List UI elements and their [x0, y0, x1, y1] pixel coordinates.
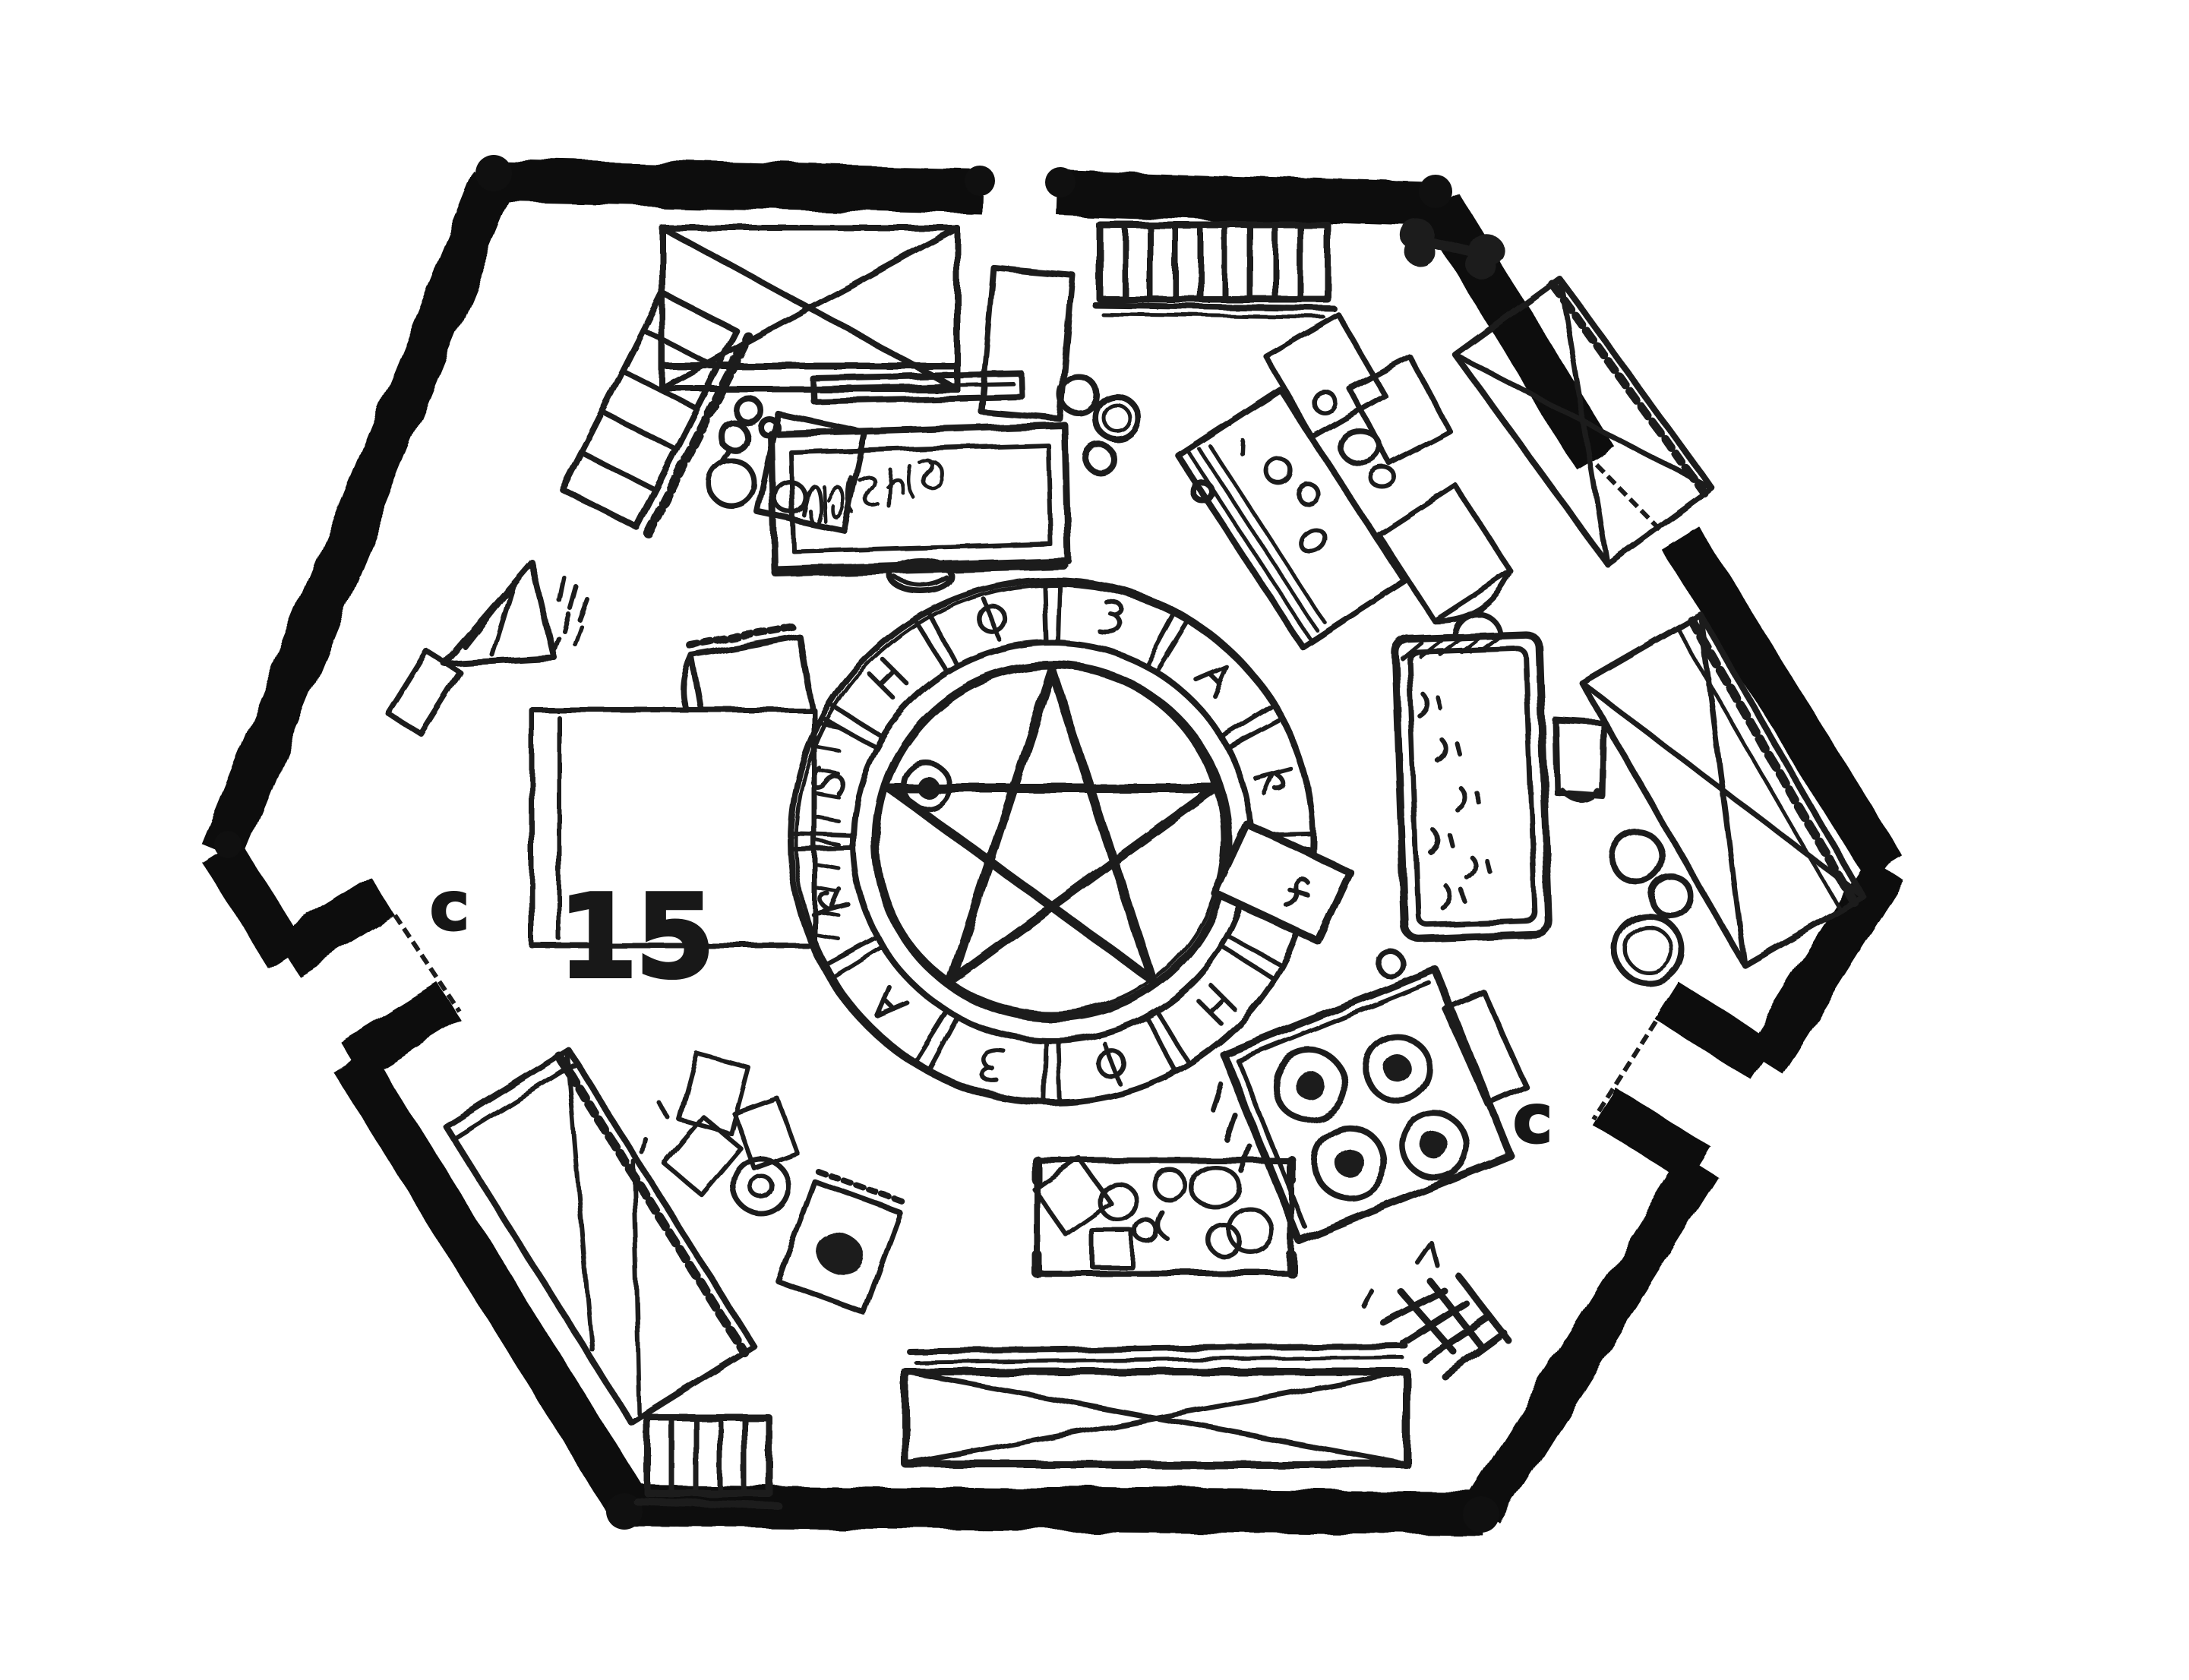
north-wall-left [495, 181, 981, 191]
pentagram-star [889, 671, 1215, 980]
knob-north-gap-left [965, 166, 995, 196]
round-side-table [709, 451, 754, 506]
southwest-door-jamb-upper [287, 897, 384, 957]
sign-with-illegible-script [772, 425, 1068, 591]
dungeon-map: 15 c c [0, 0, 2189, 1680]
southeast-wall-upper [1764, 869, 1885, 1062]
southeast-door-jamb-upper [1667, 1001, 1764, 1062]
pebbles-right-of-sign [1060, 377, 1212, 501]
work-table-south [1034, 1158, 1291, 1273]
bathing-pool [1395, 633, 1549, 939]
knob-top-left [475, 155, 512, 191]
barred-window-south [636, 1417, 778, 1505]
chair-northeast [1379, 485, 1520, 633]
door-label-southwest: c [430, 867, 469, 946]
easel-tent [444, 562, 586, 664]
falling-tick-marks [553, 577, 586, 653]
stool-right-of-pool [1556, 720, 1604, 801]
door-label-southeast: c [1513, 1080, 1553, 1158]
scattered-papers [643, 1053, 797, 1195]
bed-southwest [447, 1050, 754, 1423]
knob-bottom-right [1463, 1496, 1499, 1533]
inner-ring-circle [853, 643, 1251, 1041]
pentagram-circle-pass2 [877, 666, 1223, 1012]
room-number-label: 15 [558, 870, 712, 1004]
southwest-door-jamb-lower [352, 1001, 449, 1061]
chair-with-figure-southwest [779, 1172, 904, 1313]
storage-crate-south [905, 1346, 1407, 1464]
furniture [388, 219, 1864, 1505]
southeast-door-jamb-lower [1603, 1105, 1700, 1166]
knob-north-gap-right [1045, 167, 1076, 197]
stove-four-burners [1183, 937, 1510, 1252]
knob-west-vertex [214, 831, 242, 858]
northwest-wall [222, 181, 495, 852]
southwest-wall-upper [222, 852, 287, 957]
north-wall-right [1057, 193, 1440, 205]
barred-shelf-north [1095, 225, 1334, 317]
knob-top-right [1419, 175, 1452, 208]
ladder-rack-northwest [562, 293, 748, 533]
northeast-wall-upper [1440, 205, 1595, 457]
bench-northwest [388, 652, 460, 734]
northeast-door-leaf [1597, 465, 1662, 532]
shelf-above-sign [813, 374, 1022, 401]
floor-plan-canvas: 15 c c [0, 0, 2189, 1680]
southeast-wall-lower [1483, 1166, 1700, 1513]
summoning-circle [791, 580, 1350, 1103]
